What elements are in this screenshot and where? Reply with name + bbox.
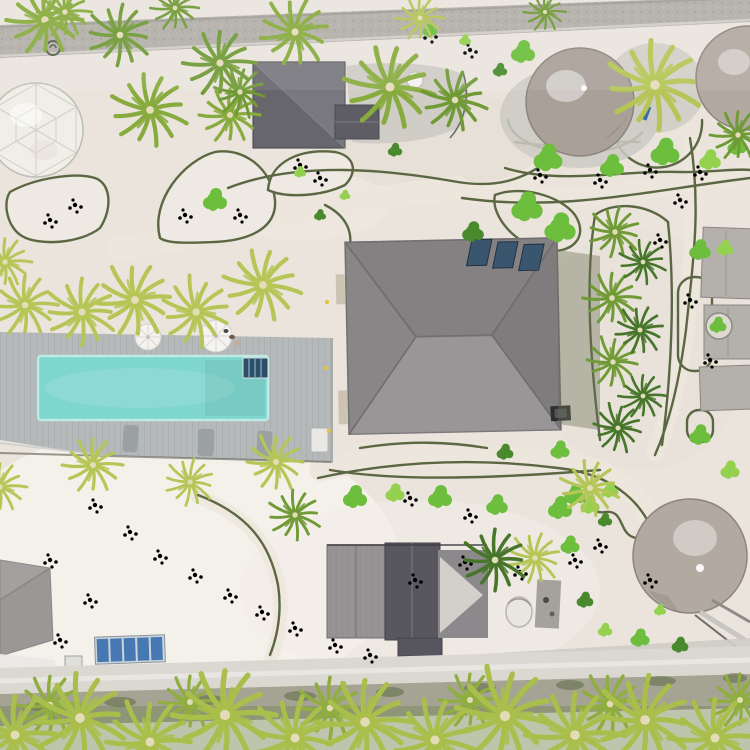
- towel-cart: [311, 428, 328, 452]
- porch: [336, 274, 346, 304]
- aerial-scene: [0, 0, 750, 750]
- geodesic-dome: [0, 83, 83, 177]
- pool-equipment: [535, 579, 561, 628]
- pavilion-shadow: [558, 250, 600, 430]
- resort-aerial-photo: [0, 0, 750, 750]
- swimming-pool: [38, 356, 268, 420]
- pool-spa: [243, 358, 268, 378]
- plunge-pool: [506, 597, 532, 627]
- porch: [338, 390, 348, 424]
- ground-solar-array: [95, 635, 166, 664]
- main-pavilion: [335, 238, 571, 435]
- utility-box: [65, 656, 82, 667]
- top-haze: [0, 0, 750, 90]
